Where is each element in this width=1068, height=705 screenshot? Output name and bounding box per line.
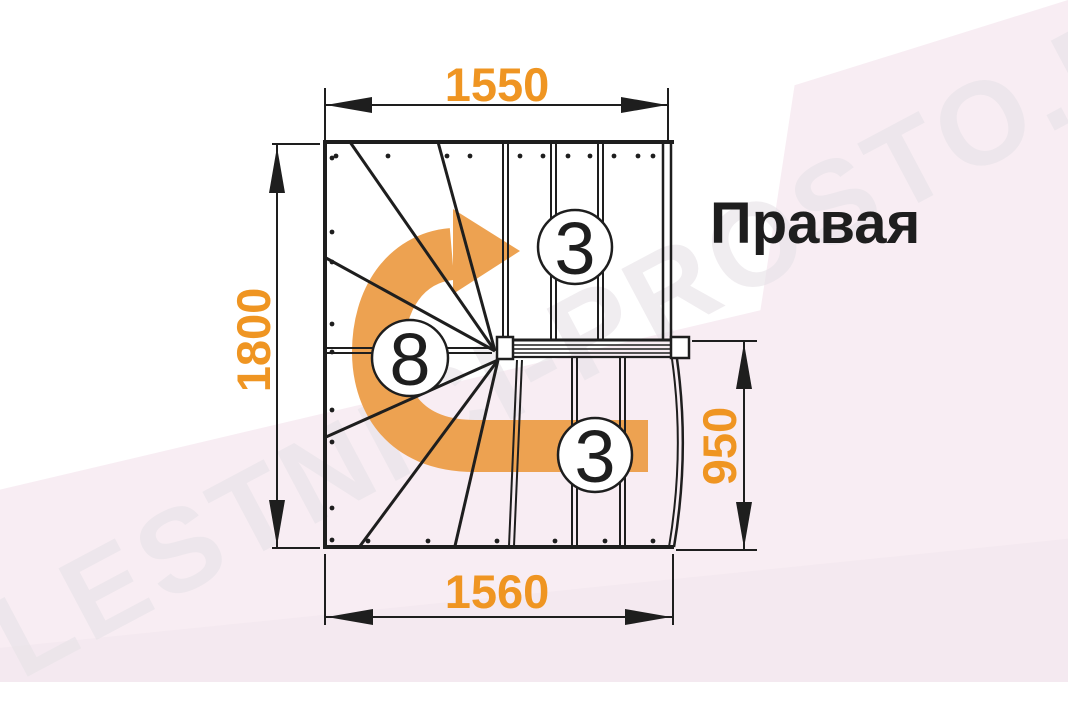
upper-flight-step-count: 3 xyxy=(554,207,595,290)
direction-arrow-head-icon xyxy=(453,209,520,294)
dimension-right-label: 950 xyxy=(693,407,746,485)
landing-beam xyxy=(497,337,689,359)
dimension-bottom: 1560 xyxy=(325,554,673,625)
landing-post-right xyxy=(671,337,689,358)
dimension-bottom-label: 1560 xyxy=(445,565,550,618)
winder-step-count: 8 xyxy=(389,318,430,401)
dimension-right: 950 xyxy=(676,341,757,550)
dimension-top-label: 1550 xyxy=(445,58,550,111)
step-count-badge-upper: 3 xyxy=(538,207,612,290)
lower-flight-step-count: 3 xyxy=(574,415,615,498)
dimension-left: 1800 xyxy=(227,144,320,548)
staircase-plan-drawing: 3 8 3 1550 1800 950 xyxy=(0,0,1068,682)
direction-label: Правая xyxy=(710,191,920,256)
dimension-top: 1550 xyxy=(325,58,668,140)
lower-curved-stringer-inner xyxy=(669,359,678,547)
dimension-left-label: 1800 xyxy=(227,288,280,393)
landing-post-left xyxy=(497,337,513,359)
